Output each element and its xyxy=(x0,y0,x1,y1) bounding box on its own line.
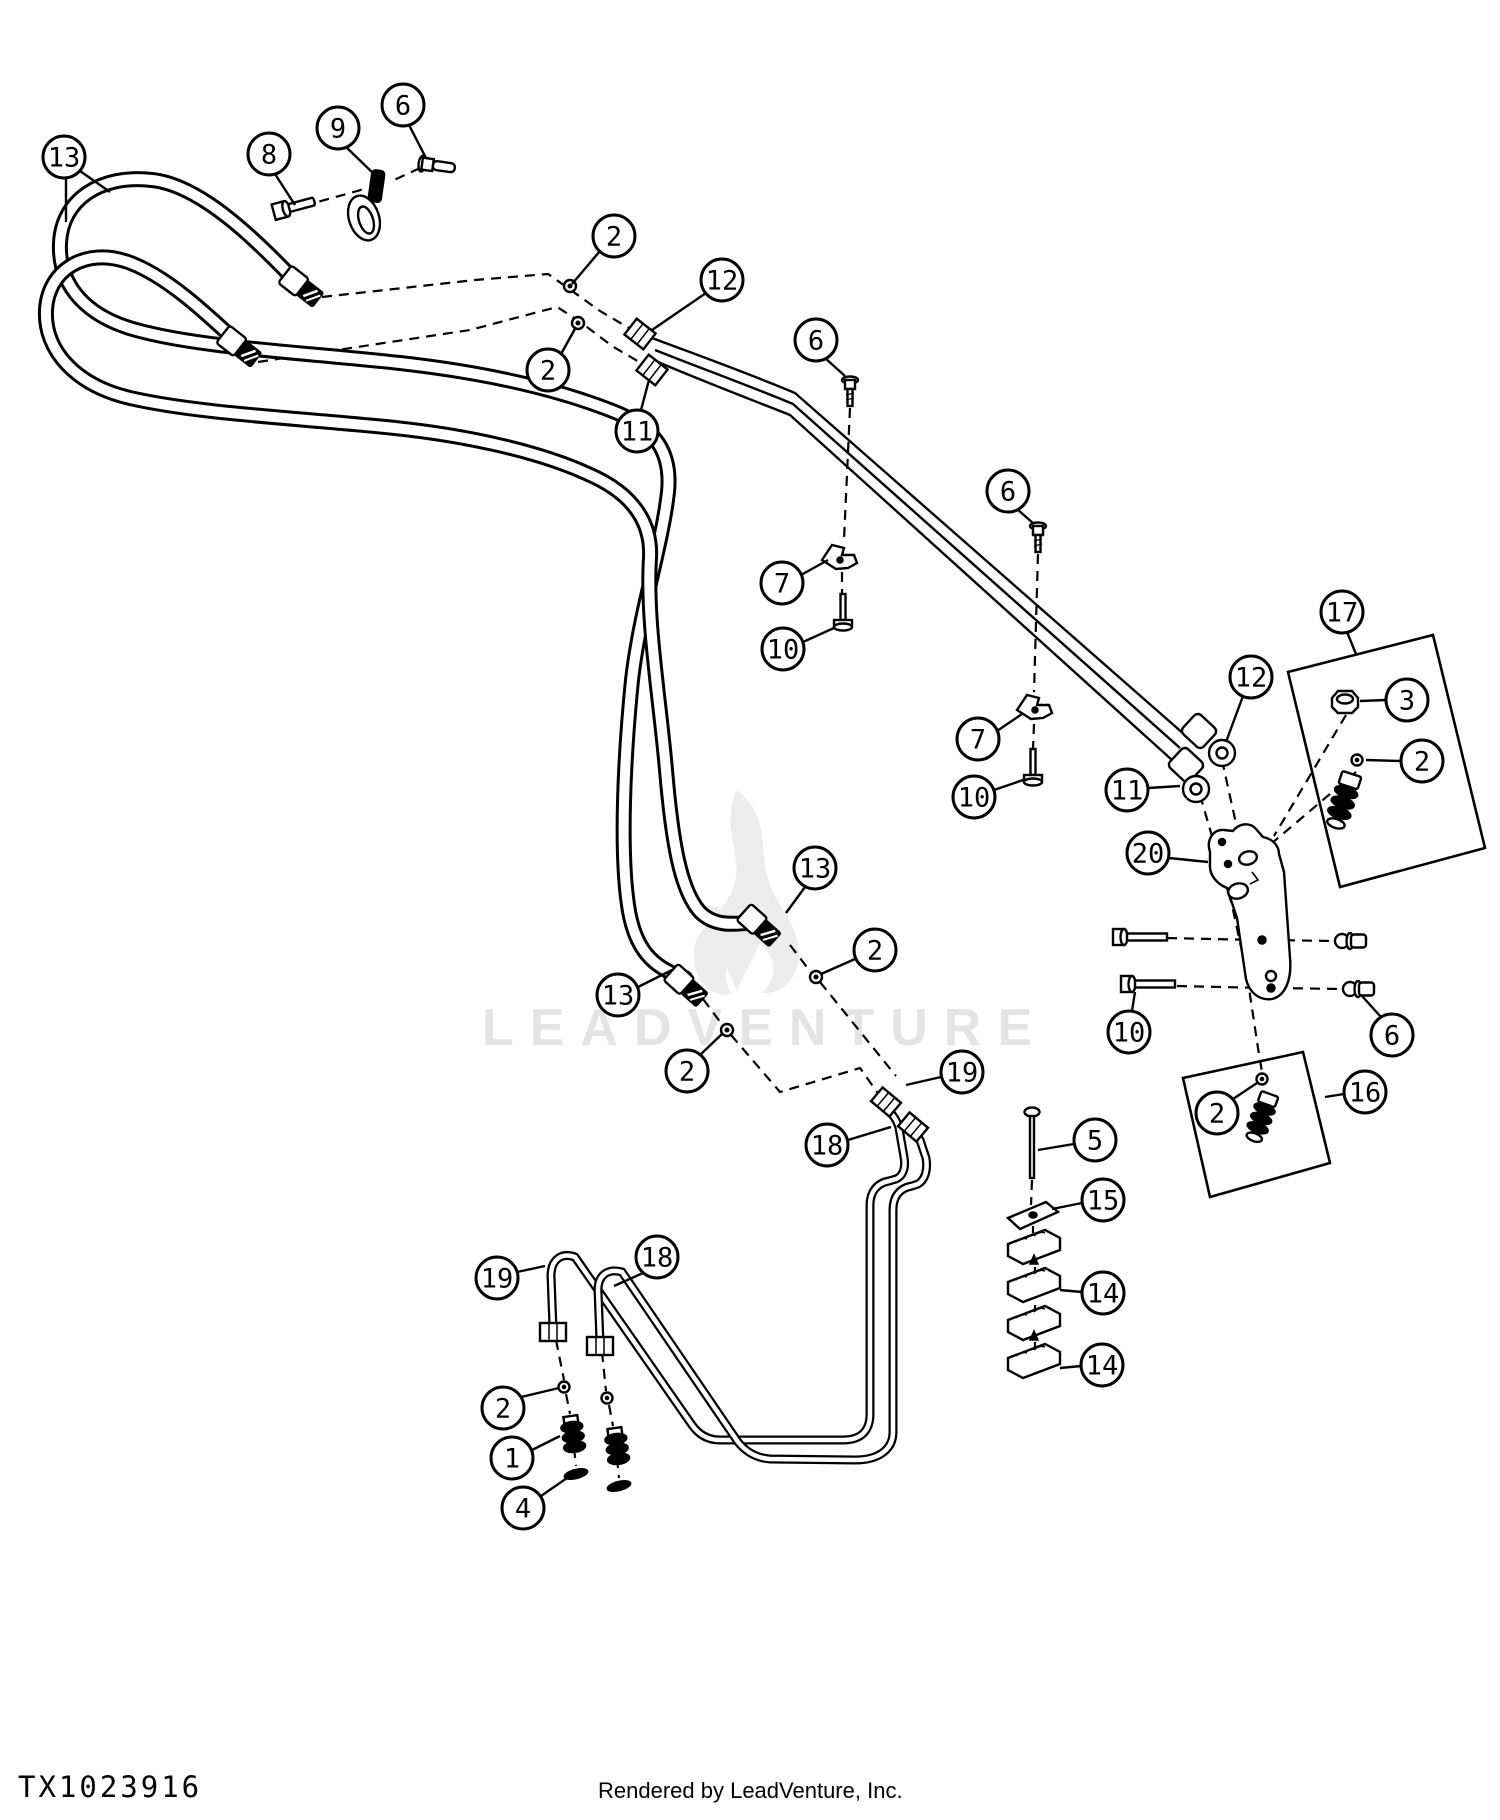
callout-label: 6 xyxy=(1384,1021,1400,1052)
callout-19: 19 xyxy=(476,1257,545,1299)
callout-label: 1 xyxy=(504,1444,520,1475)
callout-label: 9 xyxy=(330,114,346,145)
callout-3: 3 xyxy=(1360,679,1428,721)
callout-2: 2 xyxy=(482,1387,559,1429)
watermark-text: LEADVENTURE xyxy=(482,999,1048,1057)
callout-11: 11 xyxy=(616,380,658,452)
callout-leader xyxy=(1360,700,1386,701)
callout-12: 12 xyxy=(1226,656,1272,742)
callout-leader xyxy=(803,628,834,642)
callout-15: 15 xyxy=(1052,1179,1124,1221)
callout-20: 20 xyxy=(1127,832,1208,874)
callout-leader xyxy=(1132,992,1135,1011)
callout-2: 2 xyxy=(572,215,635,284)
callout-label: 2 xyxy=(540,356,556,387)
callout-label: 18 xyxy=(811,1131,844,1162)
callout-5: 5 xyxy=(1038,1119,1116,1161)
callout-leader xyxy=(1169,858,1208,862)
callout-leader xyxy=(821,959,855,974)
tube-nut xyxy=(636,355,667,386)
callout-label: 16 xyxy=(1349,1078,1382,1109)
callout-leader xyxy=(1366,760,1401,761)
callout-leader xyxy=(409,125,426,158)
callout-label: 2 xyxy=(867,936,883,967)
callout-12: 12 xyxy=(652,259,743,330)
callout-label: 6 xyxy=(1000,477,1016,508)
callout-label: 14 xyxy=(1086,1351,1119,1382)
bolt-10 xyxy=(1121,976,1175,992)
callout-label: 3 xyxy=(1399,686,1415,717)
callout-label: 19 xyxy=(946,1058,979,1089)
callout-label: 2 xyxy=(606,222,622,253)
bracket-20 xyxy=(1209,824,1290,999)
callout-2: 2 xyxy=(1366,740,1443,782)
bolt-5 xyxy=(1025,1108,1040,1179)
callout-label: 2 xyxy=(1209,1099,1225,1130)
callout-label: 12 xyxy=(706,266,739,297)
connector-1 xyxy=(559,1415,586,1454)
bolt-10 xyxy=(1024,749,1042,786)
bolt-10 xyxy=(1113,929,1167,945)
callout-label: 10 xyxy=(1113,1018,1146,1049)
callout-label: 10 xyxy=(767,635,800,666)
parts-diagram-page: LEADVENTURE xyxy=(0,0,1500,1820)
callout-label: 2 xyxy=(495,1394,511,1425)
callout-leader xyxy=(1325,1094,1344,1097)
clip-7 xyxy=(1017,695,1052,719)
callout-9: 9 xyxy=(317,107,375,175)
callout-13: 13 xyxy=(786,847,836,913)
callout-leader xyxy=(521,1388,559,1397)
callout-leader xyxy=(532,1436,560,1450)
callout-leader xyxy=(1060,1290,1082,1292)
callout-10: 10 xyxy=(762,628,834,670)
callout-label: 13 xyxy=(799,854,832,885)
callout-label: 8 xyxy=(261,140,277,171)
callout-label: 13 xyxy=(602,981,635,1012)
callout-10: 10 xyxy=(953,776,1026,818)
drawing-number: TX1023916 xyxy=(18,1770,202,1804)
coupler-plug xyxy=(1243,1090,1281,1145)
screw-6 xyxy=(842,377,858,407)
callout-16: 16 xyxy=(1325,1071,1386,1113)
callout-label: 7 xyxy=(774,569,790,600)
callout-leader xyxy=(906,1077,941,1085)
callout-2: 2 xyxy=(821,929,896,974)
bolt-10 xyxy=(834,594,852,631)
callout-leader xyxy=(801,560,828,575)
callout-label: 11 xyxy=(1111,776,1144,807)
washer-4 xyxy=(563,1467,631,1494)
parts-diagram-canvas: LEADVENTURE xyxy=(0,0,1500,1820)
callout-leader xyxy=(541,1478,567,1496)
callout-leader xyxy=(517,1266,545,1272)
callout-leader xyxy=(1148,786,1180,788)
callout-10: 10 xyxy=(1108,992,1150,1053)
callout-leader xyxy=(1362,996,1381,1017)
screw-6 xyxy=(418,155,456,176)
footer-credit: Rendered by LeadVenture, Inc. xyxy=(598,1778,903,1804)
callout-2: 2 xyxy=(527,327,576,391)
callout-label: 5 xyxy=(1087,1126,1103,1157)
callout-label: 7 xyxy=(970,725,986,756)
callout-6: 6 xyxy=(1362,996,1413,1056)
callout-leader xyxy=(848,1127,891,1140)
nut-6 xyxy=(1343,981,1374,997)
tube-nut xyxy=(587,1337,613,1355)
callout-leader xyxy=(1233,1083,1257,1099)
callout-label: 2 xyxy=(679,1057,695,1088)
tube-assembly-11-12 xyxy=(624,319,1235,802)
callout-leader xyxy=(1060,1366,1081,1368)
callout-label: 14 xyxy=(1087,1279,1120,1310)
callout-leader xyxy=(997,714,1022,731)
screw-6 xyxy=(1030,523,1046,553)
bolt-8 xyxy=(272,194,317,220)
callout-leader xyxy=(994,779,1026,790)
hose-fitting xyxy=(278,265,325,308)
callout-6: 6 xyxy=(987,470,1034,524)
callout-1: 1 xyxy=(491,1436,560,1479)
callout-leader xyxy=(572,251,600,284)
callout-label: 10 xyxy=(958,783,991,814)
callout-label: 6 xyxy=(395,91,411,122)
cap-3 xyxy=(1332,691,1358,713)
callout-leader xyxy=(641,380,649,410)
callout-leader xyxy=(1017,509,1034,524)
callout-label: 12 xyxy=(1235,663,1268,694)
callout-leader xyxy=(346,147,375,175)
callout-18: 18 xyxy=(806,1124,891,1166)
clip-7 xyxy=(822,545,857,569)
callout-4: 4 xyxy=(502,1478,567,1529)
hardware-parts xyxy=(272,155,1485,1493)
callout-label: 19 xyxy=(481,1264,514,1295)
nut-6 xyxy=(1335,933,1366,949)
callout-label: 4 xyxy=(515,1494,531,1525)
callout-label: 6 xyxy=(808,326,824,357)
callout-19: 19 xyxy=(906,1051,983,1093)
callout-6: 6 xyxy=(795,319,845,376)
callout-6: 6 xyxy=(382,84,426,158)
callout-leader xyxy=(1226,696,1243,742)
callout-leader xyxy=(652,293,706,330)
callout-8: 8 xyxy=(248,133,295,205)
callout-7: 7 xyxy=(761,560,828,604)
callout-leader xyxy=(1038,1144,1074,1150)
callout-label: 13 xyxy=(48,143,81,174)
tube-assembly-18-19 xyxy=(540,1087,928,1460)
callout-leader xyxy=(1347,632,1356,654)
clamp-9 xyxy=(343,169,386,244)
connector-1 xyxy=(603,1427,630,1466)
callout-leader xyxy=(786,887,805,913)
callout-label: 20 xyxy=(1132,839,1165,870)
hose-assembly-13 xyxy=(46,179,782,1008)
callout-leader xyxy=(825,358,845,376)
plate-15 xyxy=(1008,1202,1058,1229)
callout-label: 17 xyxy=(1326,598,1359,629)
callout-label: 18 xyxy=(641,1243,674,1274)
callout-11: 11 xyxy=(1106,769,1180,811)
callout-leader xyxy=(1052,1203,1082,1209)
tube-nut xyxy=(624,319,655,350)
coupler-plug xyxy=(1323,770,1363,831)
callout-17: 17 xyxy=(1321,591,1363,654)
callout-7: 7 xyxy=(957,714,1022,760)
callout-14: 14 xyxy=(1060,1344,1123,1386)
callout-label: 15 xyxy=(1087,1186,1120,1217)
callout-14: 14 xyxy=(1060,1272,1124,1314)
callout-label: 11 xyxy=(621,417,654,448)
tube-nut xyxy=(540,1323,566,1341)
callout-label: 2 xyxy=(1414,747,1430,778)
callout-leader xyxy=(561,327,576,354)
clamp-blocks-14 xyxy=(1008,1230,1060,1378)
